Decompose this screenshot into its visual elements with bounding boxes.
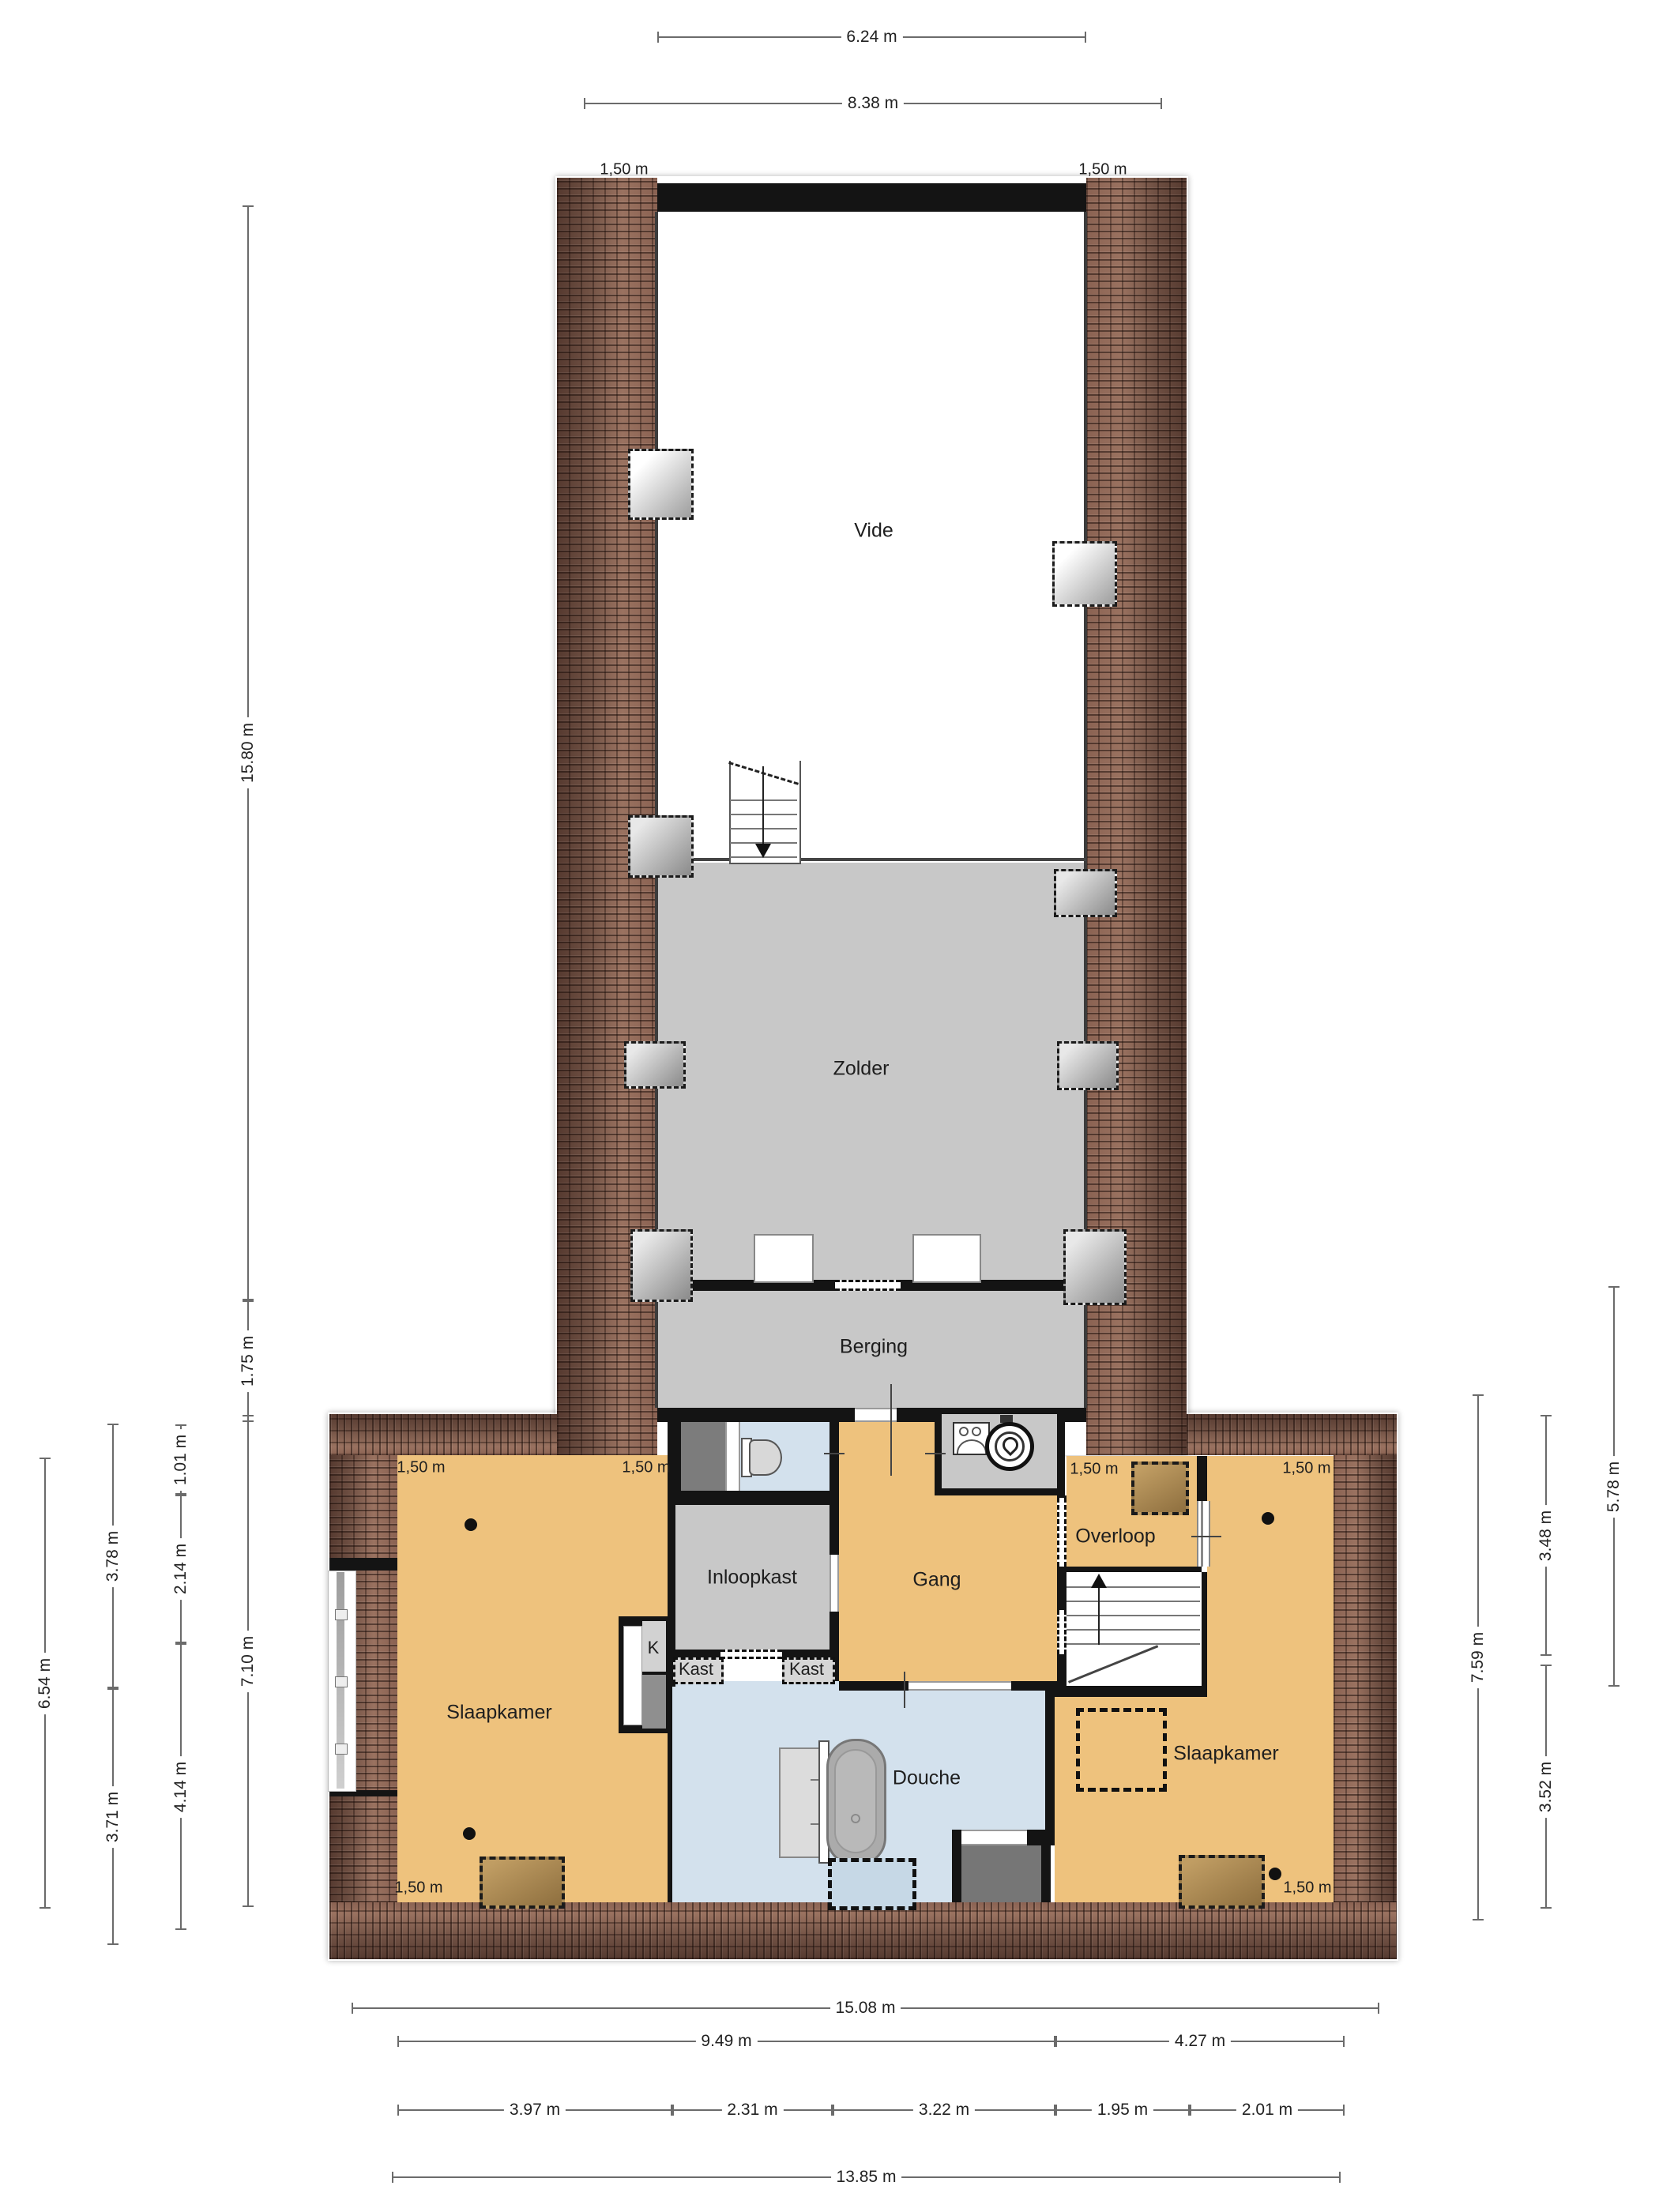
dimension-label: 4.27 m bbox=[1169, 2031, 1231, 2052]
dimension-label: 3.78 m bbox=[103, 1525, 123, 1586]
dimension-label: 8.38 m bbox=[842, 93, 904, 114]
overloop-internal-window bbox=[1197, 1501, 1210, 1567]
toilet-door bbox=[725, 1422, 740, 1491]
dimension-tick bbox=[243, 205, 254, 207]
wall bbox=[1055, 1686, 1207, 1697]
dimension-label: 9.49 m bbox=[695, 2031, 757, 2052]
dimension-tick bbox=[833, 2105, 834, 2116]
stairs-up-arrow-stem bbox=[1098, 1583, 1100, 1645]
section-mark bbox=[824, 1453, 845, 1454]
dimension-label: 3.48 m bbox=[1536, 1504, 1556, 1566]
dimension-label: 3.97 m bbox=[504, 2100, 566, 2120]
left-window-mullion-1 bbox=[335, 1609, 348, 1620]
dormer-window-marker bbox=[1052, 541, 1117, 607]
dimension-label: 6.24 m bbox=[841, 27, 902, 47]
store-room-opening bbox=[961, 1830, 1027, 1845]
room-label: Vide bbox=[854, 520, 893, 543]
dimension-tick bbox=[107, 1424, 118, 1425]
clearance-label: 1,50 m bbox=[1283, 1879, 1331, 1898]
dimension-label: 2.31 m bbox=[721, 2100, 783, 2120]
roof-window-marker bbox=[1131, 1461, 1189, 1515]
overloop-dashed-opening-1 bbox=[1057, 1498, 1066, 1567]
dimension-label: 3.71 m bbox=[103, 1785, 123, 1847]
dimension-tick bbox=[1473, 1919, 1484, 1920]
dimension-label: 1.75 m bbox=[238, 1330, 258, 1392]
store-room-floor bbox=[961, 1845, 1041, 1902]
roof-strip-lower-right bbox=[1334, 1455, 1397, 1902]
dimension-tick bbox=[1339, 2172, 1341, 2183]
sink-basin bbox=[957, 1439, 987, 1455]
dimension-label: 1.01 m bbox=[171, 1428, 191, 1490]
clearance-label: 1,50 m bbox=[1078, 161, 1127, 179]
section-mark bbox=[904, 1672, 905, 1708]
dimension-tick bbox=[243, 1905, 254, 1907]
inloopkast-dashed-opening bbox=[720, 1650, 782, 1659]
clearance-label: 1,50 m bbox=[600, 161, 648, 179]
dimension-tick bbox=[1055, 2036, 1057, 2047]
wall bbox=[1197, 1456, 1207, 1503]
dimension-tick bbox=[584, 98, 585, 109]
dimension-tick bbox=[39, 1907, 51, 1909]
dimension-tick bbox=[657, 32, 659, 43]
dimension-tick bbox=[397, 2105, 399, 2116]
left-window-mullion-3 bbox=[335, 1744, 348, 1755]
wall bbox=[829, 1422, 839, 1681]
dimension-label: 15.80 m bbox=[238, 717, 258, 788]
wall bbox=[935, 1488, 1065, 1495]
sink-icon bbox=[953, 1422, 990, 1455]
room-label: Overloop bbox=[1075, 1525, 1155, 1548]
bathtub-inner bbox=[834, 1749, 877, 1853]
dimension-label: 1.95 m bbox=[1092, 2100, 1153, 2120]
section-mark bbox=[1191, 1536, 1221, 1537]
zolder-berging-opening bbox=[835, 1280, 901, 1291]
douche-door bbox=[908, 1681, 1011, 1691]
clearance-label: 1,50 m bbox=[1282, 1460, 1330, 1478]
dimension-label: 2.14 m bbox=[171, 1538, 191, 1600]
ceiling-point bbox=[1262, 1512, 1274, 1525]
stairs-down-arrow-head bbox=[755, 844, 771, 858]
dimension-tick bbox=[1055, 2105, 1057, 2116]
bathtub-drain bbox=[851, 1814, 860, 1823]
room-label: Berging bbox=[840, 1336, 908, 1359]
dormer-window-marker bbox=[628, 815, 694, 878]
dimension-tick bbox=[672, 2105, 674, 2116]
dimension-tick bbox=[175, 1643, 186, 1645]
stairs-down-arrow-stem bbox=[762, 766, 764, 845]
dormer-window-marker bbox=[624, 1041, 686, 1089]
vanity-tick-2 bbox=[811, 1823, 818, 1825]
stairs-up-arrow-head bbox=[1091, 1574, 1107, 1588]
section-mark bbox=[890, 1384, 892, 1476]
dimension-tick bbox=[1540, 1415, 1552, 1416]
dimension-label: 4.14 m bbox=[171, 1755, 191, 1817]
clearance-label: 1,50 m bbox=[1070, 1461, 1118, 1479]
wall bbox=[952, 1845, 961, 1902]
floor-plan: VideZolderBergingSlaapkamerInloopkastGan… bbox=[0, 0, 1659, 2212]
dimension-tick bbox=[1540, 1654, 1552, 1656]
overloop-internal-window-glass bbox=[1201, 1501, 1203, 1567]
dimension-tick bbox=[1540, 1907, 1552, 1909]
room-label: Zolder bbox=[833, 1058, 890, 1081]
dormer-window-marker bbox=[1054, 869, 1117, 917]
dimension-label: 2.01 m bbox=[1236, 2100, 1298, 2120]
dimension-tick bbox=[392, 2172, 393, 2183]
stairs-up-treads bbox=[1066, 1574, 1200, 1646]
dimension-tick bbox=[107, 1943, 118, 1945]
clearance-label: 1,50 m bbox=[394, 1879, 442, 1898]
dimension-tick bbox=[1608, 1286, 1619, 1288]
dimension-tick bbox=[243, 1415, 254, 1416]
vanity-tick-1 bbox=[811, 1779, 818, 1781]
wall bbox=[1045, 1691, 1055, 1845]
dimension-label: 13.85 m bbox=[831, 2167, 902, 2188]
boiler-icon bbox=[985, 1422, 1034, 1471]
dormer-window-marker bbox=[1057, 1041, 1119, 1090]
clearance-label: 1,50 m bbox=[397, 1459, 445, 1477]
tower-top-wall bbox=[657, 183, 1086, 212]
dormer-window-marker bbox=[630, 1229, 693, 1302]
room-label: Douche bbox=[893, 1767, 961, 1790]
vanity-icon bbox=[779, 1747, 822, 1858]
dimension-tick bbox=[107, 1688, 118, 1690]
dormer-window-marker bbox=[1063, 1229, 1127, 1305]
dimension-label: 15.08 m bbox=[830, 1998, 901, 2018]
room-label: Slaapkamer bbox=[1173, 1743, 1278, 1766]
roof-window-marker bbox=[480, 1856, 565, 1909]
overloop-dashed-opening-2 bbox=[1057, 1610, 1066, 1654]
roof-strip-lower-top-left bbox=[329, 1414, 557, 1455]
zolder-cupboard-right bbox=[912, 1234, 981, 1283]
slaapkamer-right-floor-top bbox=[1207, 1456, 1334, 1697]
room-label: Gang bbox=[912, 1569, 961, 1592]
dimension-tick bbox=[1540, 1665, 1552, 1666]
dimension-tick bbox=[1161, 98, 1162, 109]
room-label: K bbox=[648, 1638, 660, 1658]
dimension-label: 6.54 m bbox=[35, 1652, 55, 1714]
bathtub-icon bbox=[826, 1739, 886, 1866]
k-closet-cell-dark bbox=[642, 1675, 666, 1729]
duct-space bbox=[681, 1422, 725, 1491]
dimension-tick bbox=[1085, 32, 1086, 43]
roof-strip-lower-bottom bbox=[329, 1902, 1397, 1959]
dormer-window-marker bbox=[628, 449, 694, 520]
tower-inner-edge-right bbox=[1084, 212, 1087, 1408]
roof-window-marker bbox=[1179, 1855, 1265, 1909]
gang-floor-upper bbox=[839, 1422, 935, 1501]
toilet-bowl bbox=[749, 1439, 782, 1476]
ceiling-point bbox=[1269, 1868, 1281, 1880]
dimension-tick bbox=[175, 1495, 186, 1496]
dimension-tick bbox=[1190, 2105, 1191, 2116]
room-label: Kast bbox=[789, 1659, 824, 1680]
clearance-label: 1,50 m bbox=[622, 1459, 670, 1477]
dimension-tick bbox=[352, 2003, 353, 2014]
dimension-tick bbox=[1378, 2003, 1379, 2014]
low-headroom-zone bbox=[1076, 1708, 1167, 1792]
section-mark bbox=[925, 1453, 946, 1454]
zolder-cupboard-left bbox=[754, 1234, 814, 1283]
room-label: Kast bbox=[679, 1659, 713, 1680]
room-label: Slaapkamer bbox=[446, 1702, 551, 1725]
dimension-tick bbox=[175, 1928, 186, 1930]
k-closet-door bbox=[623, 1626, 642, 1725]
ceiling-point bbox=[465, 1518, 477, 1531]
dimension-tick bbox=[175, 1424, 186, 1426]
vide-zolder-edge bbox=[657, 858, 1086, 861]
dimension-tick bbox=[397, 2036, 399, 2047]
roof-strip-lower-top-right bbox=[1187, 1414, 1397, 1455]
dimension-tick bbox=[1473, 1394, 1484, 1396]
dimension-tick bbox=[243, 1300, 254, 1302]
dimension-label: 3.52 m bbox=[1536, 1755, 1556, 1817]
dimension-label: 7.59 m bbox=[1468, 1627, 1488, 1688]
sink-tap-2 bbox=[972, 1427, 981, 1436]
low-headroom-zone bbox=[828, 1858, 916, 1910]
sink-tap-1 bbox=[959, 1427, 969, 1436]
dimension-label: 5.78 m bbox=[1604, 1455, 1624, 1517]
dimension-tick bbox=[1343, 2105, 1345, 2116]
room-label: Inloopkast bbox=[707, 1567, 797, 1589]
wall bbox=[1057, 1414, 1065, 1495]
dimension-tick bbox=[1608, 1685, 1619, 1687]
tower-inner-edge-left bbox=[655, 212, 658, 1408]
ceiling-point bbox=[463, 1827, 476, 1840]
left-window-mullion-2 bbox=[335, 1676, 348, 1687]
gang-west-door bbox=[829, 1555, 839, 1612]
dimension-label: 7.10 m bbox=[238, 1630, 258, 1691]
wall bbox=[935, 1414, 942, 1495]
dimension-tick bbox=[39, 1458, 51, 1459]
dimension-tick bbox=[1343, 2036, 1345, 2047]
wall bbox=[1041, 1845, 1051, 1902]
dimension-label: 3.22 m bbox=[913, 2100, 975, 2120]
left-wall-stub-top bbox=[329, 1558, 397, 1571]
wall bbox=[670, 1491, 836, 1505]
